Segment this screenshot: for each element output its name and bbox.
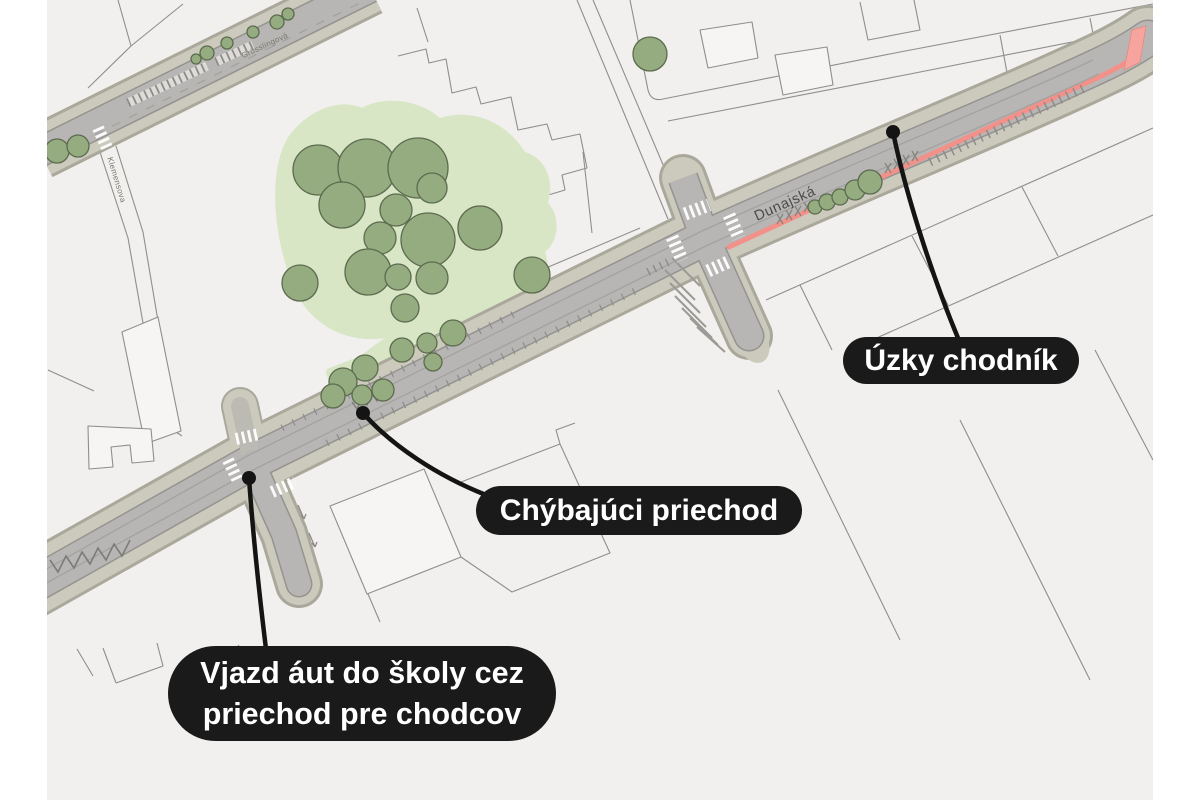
annotation-school-entry-line2: priechod pre chodcov — [203, 694, 522, 735]
annotation-school-entry: Vjazd áut do školy cez priechod pre chod… — [168, 646, 556, 741]
annotated-street-map: Dunajská Grösslingová Klemensova Úzky ch… — [0, 0, 1200, 800]
annotation-missing-crossing: Chýbajúci priechod — [476, 486, 802, 535]
dot-missing-crossing — [356, 406, 370, 420]
annotation-narrow-sidewalk-text: Úzky chodník — [864, 341, 1057, 381]
dot-school-entry — [242, 471, 256, 485]
dot-narrow-sidewalk — [886, 125, 900, 139]
annotation-narrow-sidewalk: Úzky chodník — [843, 337, 1079, 384]
annotation-missing-crossing-text: Chýbajúci priechod — [500, 491, 778, 531]
annotation-school-entry-line1: Vjazd áut do školy cez — [200, 653, 524, 694]
